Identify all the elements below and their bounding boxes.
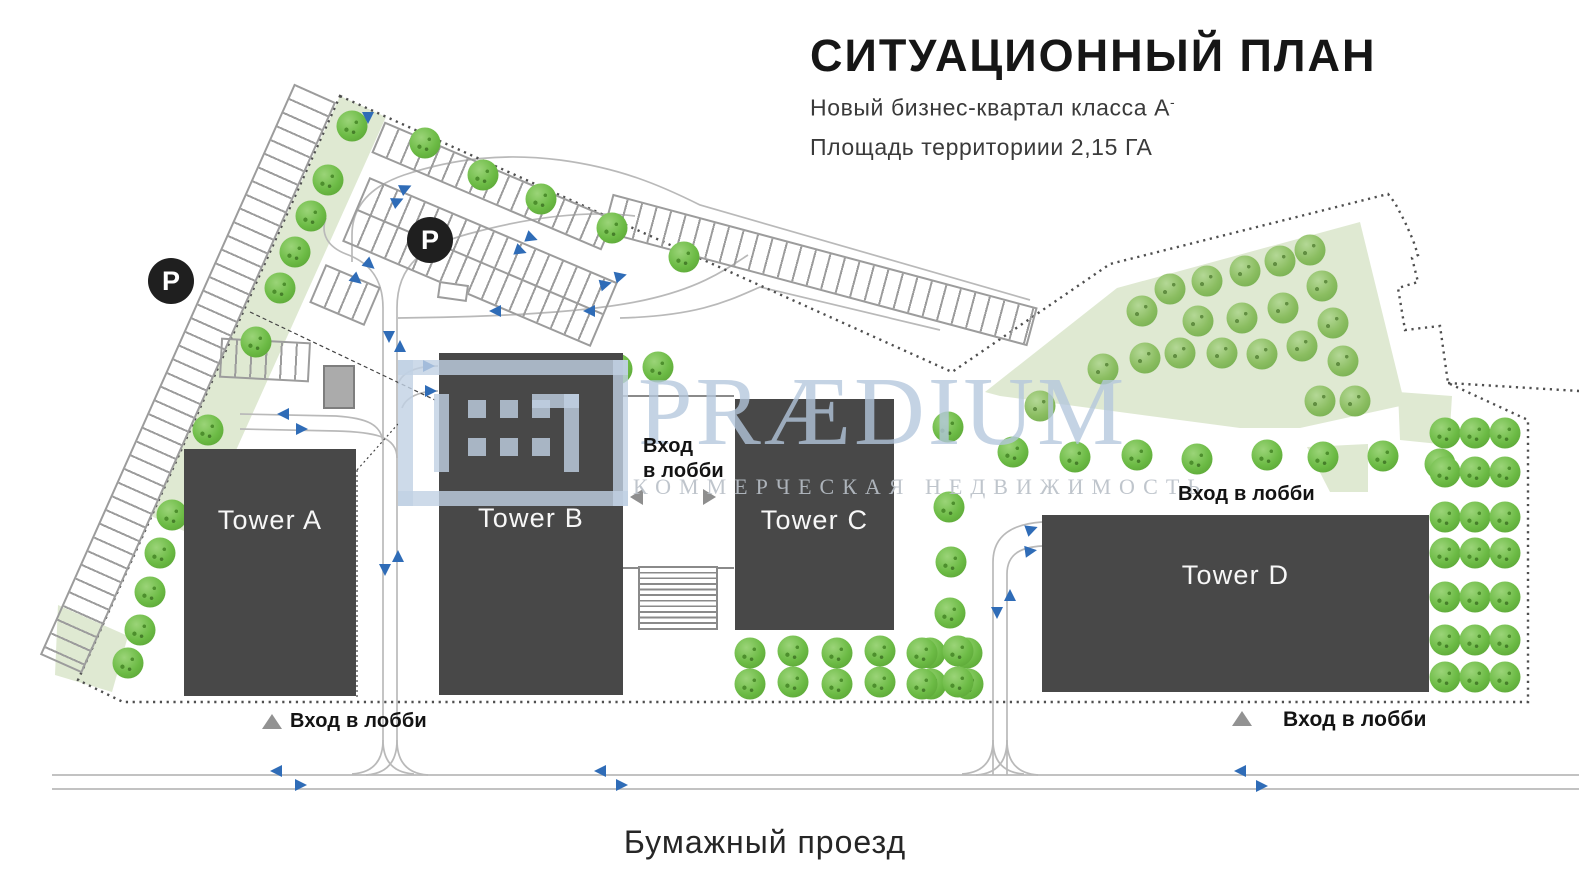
tree-icon: [936, 547, 967, 578]
tree-icon: [1340, 386, 1371, 417]
tree-icon: [1460, 502, 1491, 533]
tree-icon: [1268, 293, 1299, 324]
tree-icon: [1460, 418, 1491, 449]
tree-icon: [1305, 386, 1336, 417]
tree-icon: [643, 352, 674, 383]
tree-icon: [865, 667, 896, 698]
tree-icon: [1490, 457, 1521, 488]
traffic-arrow-icon: [616, 779, 628, 791]
tree-icon: [1307, 271, 1338, 302]
tree-icon: [1430, 582, 1461, 613]
lobby-entrance-label-d-top: Вход в лобби: [1178, 483, 1315, 506]
tree-icon: [1430, 502, 1461, 533]
entrance-arrow-up-icon: [1232, 711, 1252, 726]
tree-icon: [157, 500, 188, 531]
tree-icon: [935, 598, 966, 629]
tree-icon: [735, 669, 766, 700]
tower-c-label: Tower C: [761, 505, 868, 630]
subtitle-superscript: -: [1170, 94, 1175, 110]
traffic-arrow-icon: [277, 408, 289, 420]
tower-c-building: Tower C: [735, 399, 894, 630]
traffic-arrow-icon: [1004, 589, 1016, 601]
tree-icon: [1060, 442, 1091, 473]
tree-icon: [113, 648, 144, 679]
tree-icon: [296, 201, 327, 232]
tree-icon: [1192, 266, 1223, 297]
traffic-arrow-icon: [392, 550, 404, 562]
tower-b-building: Tower B: [439, 353, 623, 695]
tree-icon: [241, 327, 272, 358]
tree-icon: [1460, 625, 1491, 656]
tree-icon: [1227, 303, 1258, 334]
service-building: [323, 365, 355, 409]
tree-icon: [135, 577, 166, 608]
lobby-entrance-label-a: Вход в лобби: [290, 710, 427, 733]
parking-badge: P: [407, 217, 453, 263]
tree-icon: [1368, 441, 1399, 472]
tree-icon: [1127, 296, 1158, 327]
tree-icon: [1088, 354, 1119, 385]
traffic-arrow-icon: [379, 564, 391, 576]
tree-icon: [1460, 662, 1491, 693]
tree-icon: [313, 165, 344, 196]
tree-icon: [468, 160, 499, 191]
tree-icon: [934, 492, 965, 523]
tree-icon: [778, 636, 809, 667]
tree-icon: [822, 669, 853, 700]
tree-icon: [1122, 440, 1153, 471]
tree-icon: [778, 667, 809, 698]
site-plan-canvas: Tower A Tower B Tower C Tower D P P Вход…: [0, 0, 1579, 883]
parking-badge: P: [148, 258, 194, 304]
tree-icon: [1308, 442, 1339, 473]
traffic-arrow-icon: [991, 607, 1003, 619]
entrance-arrow-left-icon: [630, 489, 643, 505]
tree-icon: [1460, 457, 1491, 488]
tree-icon: [735, 638, 766, 669]
tree-icon: [998, 437, 1029, 468]
tree-icon: [1490, 502, 1521, 533]
tree-icon: [1430, 625, 1461, 656]
tree-icon: [1430, 662, 1461, 693]
subtitle-line1: Новый бизнес-квартал класса А-: [810, 94, 1376, 122]
traffic-arrow-icon: [296, 423, 308, 435]
tree-icon: [1490, 662, 1521, 693]
tower-b-label: Tower B: [478, 503, 584, 695]
tree-icon: [1265, 246, 1296, 277]
tree-icon: [933, 412, 964, 443]
tower-d-label: Tower D: [1182, 560, 1289, 692]
tree-icon: [1490, 418, 1521, 449]
tree-icon: [410, 128, 441, 159]
tree-icon: [1430, 538, 1461, 569]
tree-icon: [265, 273, 296, 304]
tower-a-building: Tower A: [184, 449, 356, 696]
lobby-entrance-line1: Вход: [643, 434, 724, 459]
tree-icon: [1252, 440, 1283, 471]
tree-icon: [1460, 582, 1491, 613]
tree-icon: [1247, 339, 1278, 370]
street-name-label: Бумажный проезд: [560, 824, 970, 861]
tree-icon: [1025, 391, 1056, 422]
tree-icon: [1287, 331, 1318, 362]
traffic-arrow-icon: [425, 385, 437, 397]
tree-icon: [822, 638, 853, 669]
tree-icon: [1460, 538, 1491, 569]
traffic-arrow-icon: [1024, 544, 1038, 558]
tree-icon: [1165, 338, 1196, 369]
tower-d-building: Tower D: [1042, 515, 1429, 692]
entrance-arrow-right-icon: [703, 489, 716, 505]
tree-icon: [865, 636, 896, 667]
traffic-arrow-icon: [583, 305, 595, 317]
traffic-arrow-icon: [489, 305, 501, 317]
tree-icon: [907, 669, 938, 700]
tree-icon: [280, 237, 311, 268]
tree-icon: [1182, 444, 1213, 475]
traffic-arrow-icon: [394, 340, 406, 352]
tree-icon: [1130, 343, 1161, 374]
lobby-entrance-label-d-bottom: Вход в лобби: [1283, 708, 1427, 732]
tree-icon: [1207, 338, 1238, 369]
tree-icon: [943, 667, 974, 698]
tree-icon: [1230, 256, 1261, 287]
stairs-hatch: [638, 566, 718, 630]
tree-icon: [1318, 308, 1349, 339]
tree-icon: [1295, 235, 1326, 266]
traffic-arrow-icon: [1234, 765, 1246, 777]
tree-icon: [1430, 457, 1461, 488]
tree-icon: [145, 538, 176, 569]
entrance-arrow-up-icon: [262, 714, 282, 729]
tower-a-label: Tower A: [218, 505, 322, 696]
traffic-arrow-icon: [1256, 780, 1268, 792]
tree-icon: [125, 615, 156, 646]
tree-icon: [1490, 538, 1521, 569]
tree-icon: [597, 213, 628, 244]
traffic-arrow-icon: [270, 765, 282, 777]
lobby-entrance-line2: в лобби: [643, 459, 724, 484]
tree-icon: [1183, 306, 1214, 337]
tree-icon: [1430, 418, 1461, 449]
traffic-arrow-icon: [423, 360, 435, 372]
tree-icon: [943, 636, 974, 667]
tree-icon: [669, 242, 700, 273]
subtitle-line2: Площадь территориии 2,15 ГА: [810, 134, 1376, 161]
lobby-entrance-label-bc: Вход в лобби: [643, 434, 724, 484]
tree-icon: [1328, 346, 1359, 377]
tree-icon: [907, 638, 938, 669]
tree-icon: [1490, 582, 1521, 613]
plan-header: СИТУАЦИОННЫЙ ПЛАН Новый бизнес-квартал к…: [810, 30, 1376, 161]
tree-icon: [193, 415, 224, 446]
traffic-arrow-icon: [295, 779, 307, 791]
traffic-arrow-icon: [594, 765, 606, 777]
tree-icon: [1155, 274, 1186, 305]
traffic-arrow-icon: [362, 112, 374, 124]
page-title: СИТУАЦИОННЫЙ ПЛАН: [810, 30, 1376, 82]
tree-icon: [526, 184, 557, 215]
tree-icon: [1490, 625, 1521, 656]
